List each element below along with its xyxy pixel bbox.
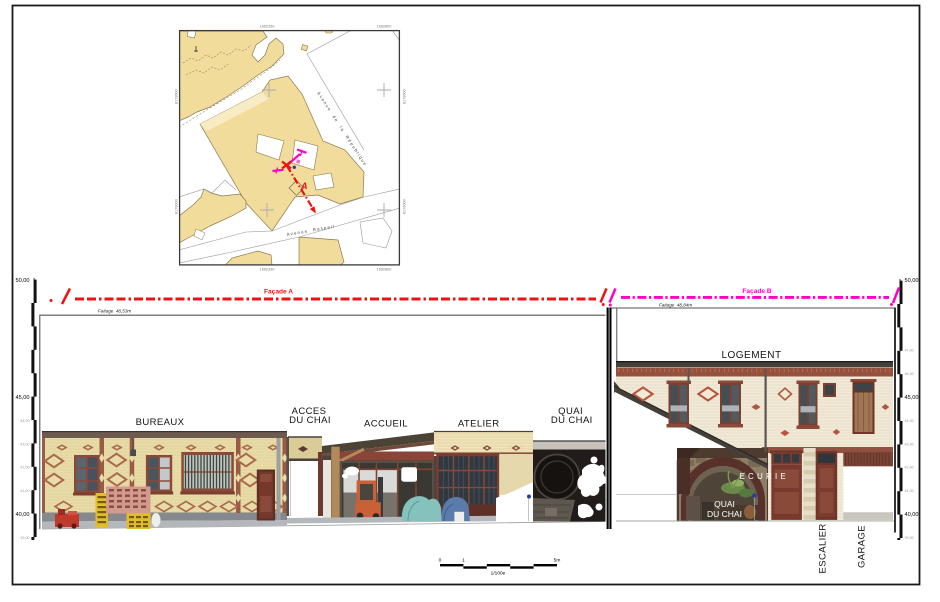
svg-text:39,00: 39,00: [20, 536, 29, 540]
svg-text:DU CHAI: DU CHAI: [551, 415, 593, 426]
svg-text:39,00: 39,00: [905, 536, 914, 540]
svg-text:ESCALIER: ESCALIER: [818, 523, 829, 573]
svg-text:44,00: 44,00: [905, 419, 914, 423]
svg-text:42,00: 42,00: [905, 466, 914, 470]
svg-text:LOGEMENT: LOGEMENT: [721, 350, 781, 361]
svg-text:GARAGE: GARAGE: [857, 525, 868, 568]
svg-text:ATELIER: ATELIER: [458, 418, 500, 429]
svg-text:46,00: 46,00: [905, 372, 914, 376]
svg-text:Façade A: Façade A: [264, 289, 293, 296]
svg-text:0: 0: [439, 558, 442, 564]
svg-text:41,00: 41,00: [905, 489, 914, 493]
svg-text:8179600: 8179600: [403, 89, 407, 104]
svg-text:8179000: 8179000: [403, 199, 407, 214]
svg-text:45,00: 45,00: [16, 395, 30, 401]
svg-text:40,00: 40,00: [905, 512, 919, 518]
svg-text:DU CHAI: DU CHAI: [707, 509, 742, 519]
svg-text:ACCUEIL: ACCUEIL: [364, 418, 408, 429]
svg-text:8179000: 8179000: [175, 199, 179, 214]
svg-text:Façade B: Façade B: [742, 288, 772, 295]
svg-text:43,00: 43,00: [20, 442, 29, 446]
svg-text:50,00: 50,00: [905, 278, 919, 284]
svg-text:40,00: 40,00: [16, 512, 30, 518]
svg-text:DU CHAI: DU CHAI: [289, 415, 331, 426]
svg-text:44,00: 44,00: [20, 419, 29, 423]
svg-text:A: A: [300, 181, 308, 191]
svg-text:50,00: 50,00: [16, 278, 30, 284]
svg-text:43,00: 43,00: [905, 442, 914, 446]
svg-text:41,00: 41,00: [20, 489, 29, 493]
svg-text:47,00: 47,00: [905, 349, 914, 353]
svg-text:1: 1: [462, 558, 465, 564]
svg-text:BUREAUX: BUREAUX: [136, 417, 185, 428]
svg-text:1662800: 1662800: [377, 25, 392, 29]
svg-text:1662800: 1662800: [377, 268, 392, 272]
svg-text:Faitage 48,53m: Faitage 48,53m: [98, 309, 131, 314]
svg-text:1/100e: 1/100e: [491, 571, 506, 577]
svg-text:5m: 5m: [554, 558, 561, 564]
svg-text:Faitage 48,84m: Faitage 48,84m: [659, 302, 692, 307]
svg-text:42,00: 42,00: [20, 466, 29, 470]
svg-text:1662330: 1662330: [260, 268, 275, 272]
svg-text:8179600: 8179600: [175, 89, 179, 104]
svg-text:ECURIE: ECURIE: [740, 472, 789, 481]
svg-text:45,00: 45,00: [905, 395, 919, 401]
svg-text:QUAI: QUAI: [714, 499, 735, 509]
svg-text:1662330: 1662330: [260, 25, 275, 29]
